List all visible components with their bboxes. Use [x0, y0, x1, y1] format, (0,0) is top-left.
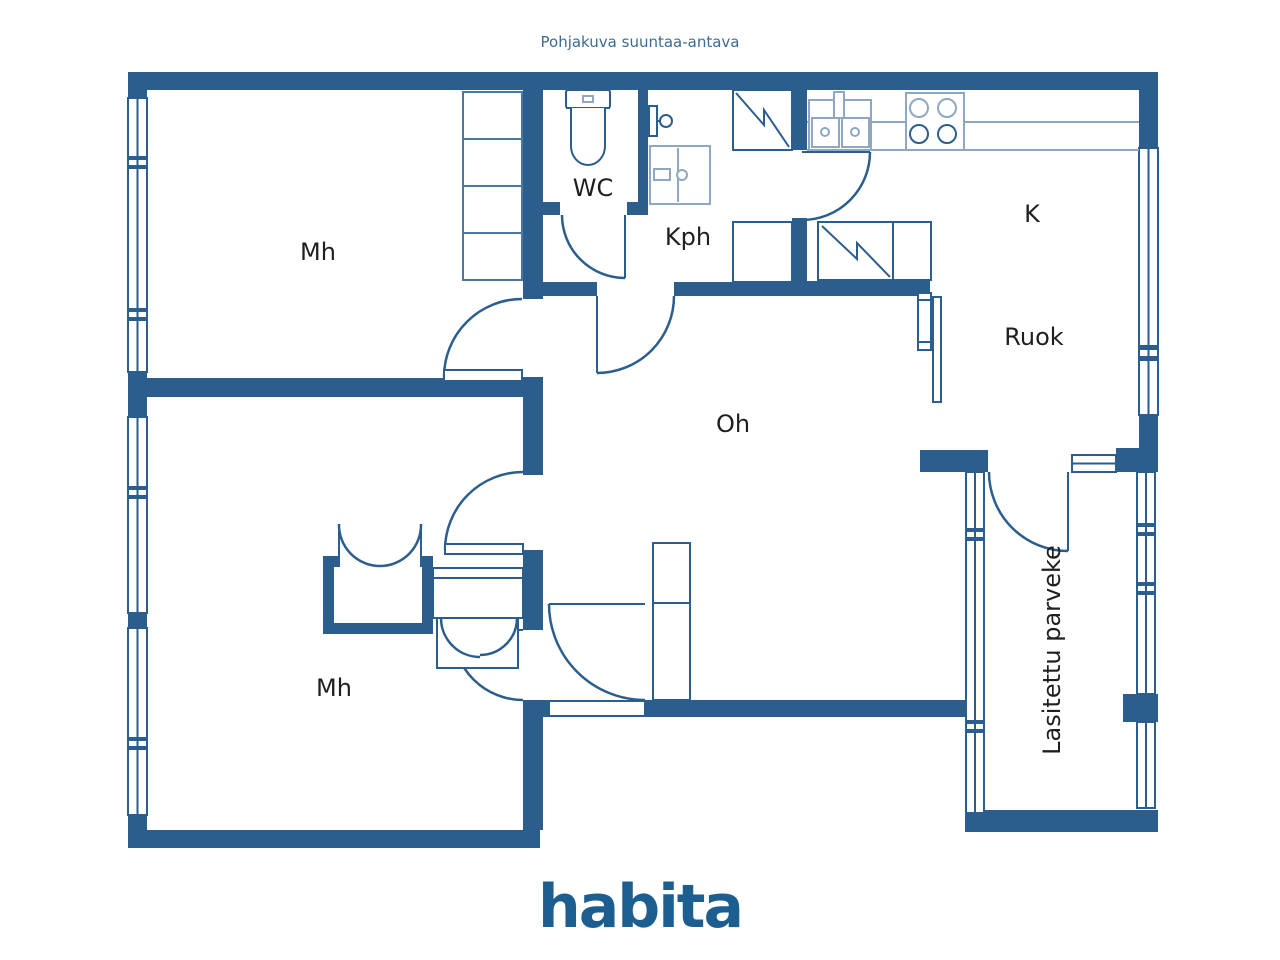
door-balcony — [989, 472, 1068, 551]
window-right-kitchen — [1139, 148, 1158, 415]
label-dining: Ruok — [1004, 323, 1063, 351]
label-mh-bottom: Mh — [316, 674, 352, 702]
label-balcony: Lasitettu parveke — [1038, 545, 1066, 755]
label-mh-top: Mh — [300, 238, 336, 266]
tall-cabinet-living — [653, 543, 690, 700]
washbasin — [650, 146, 710, 204]
floor-plan: Mh WC Kph K Ruok Oh Mh Lasitettu parveke — [0, 0, 1280, 960]
window-balcony-right-lower — [1137, 722, 1155, 808]
shower-fixture — [649, 106, 672, 136]
floor-plan-page: Pohjakuva suuntaa-antava — [0, 0, 1280, 960]
door-wc — [562, 215, 625, 278]
label-kph: Kph — [665, 223, 711, 251]
window-balcony-right-upper — [1137, 472, 1155, 694]
closet-mh-bottom — [323, 524, 433, 634]
window-balcony-top — [1072, 455, 1116, 472]
habita-logo: habita — [0, 872, 1280, 942]
label-kitchen: K — [1024, 200, 1041, 228]
label-living: Oh — [716, 410, 750, 438]
window-balcony-left — [966, 472, 984, 813]
toilet — [566, 90, 610, 165]
label-wc: WC — [573, 174, 614, 202]
kitchen-sink — [809, 92, 871, 150]
window-left-bottom — [128, 628, 147, 815]
appliance-reservation-kitchen — [818, 222, 931, 280]
appliance-reservation-kph — [733, 90, 792, 282]
door-mh-bottom-1 — [445, 472, 523, 554]
door-kph — [597, 296, 674, 373]
door-kitchen — [802, 152, 870, 220]
door-mh-top — [444, 299, 522, 381]
wardrobe-mh-top — [463, 92, 522, 280]
window-left-top — [128, 98, 147, 372]
door-entrance — [549, 604, 645, 700]
window-left-middle — [128, 417, 147, 613]
sliding-door-dining — [918, 293, 941, 402]
stove — [906, 93, 964, 150]
cabinet-mh-bottom — [433, 568, 523, 668]
